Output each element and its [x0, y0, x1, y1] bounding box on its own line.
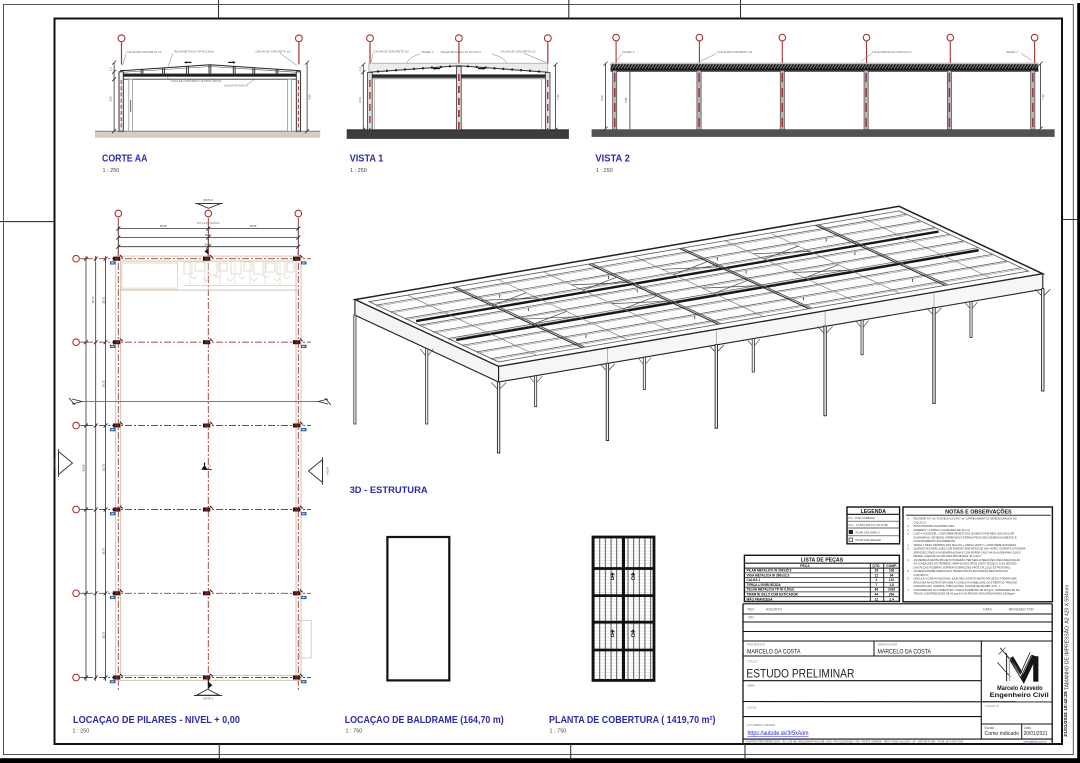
svg-text:Data: Data: [1024, 726, 1031, 730]
svg-text:LEGENDA: LEGENDA: [861, 509, 887, 515]
svg-text:2,4: 2,4: [889, 597, 894, 601]
svg-text:CALHA DE CONCRETO 1/2: CALHA DE CONCRETO 1/2: [501, 50, 537, 54]
svg-text:LOCAÇAO DE PILARES - NIVEL + 0: LOCAÇAO DE PILARES - NIVEL + 0,00: [73, 715, 241, 726]
svg-text:4.: 4.: [908, 558, 910, 562]
svg-text:ASSUNTO: ASSUNTO: [766, 607, 782, 611]
svg-text:6,00: 6,00: [600, 95, 604, 101]
svg-text:LOCAÇAO DE BALDRAME (164,70 m): LOCAÇAO DE BALDRAME (164,70 m): [345, 715, 504, 726]
svg-text:APLICADA NA ESTRUTURA SEM A CO: APLICADA NA ESTRUTURA SEM A CONSULTA A A…: [914, 580, 1018, 584]
svg-text:MÃO FRANCESA: MÃO FRANCESA: [747, 596, 774, 601]
svg-text:TERÇA = PESO PROPRIO DAS TELHA: TERÇA = PESO PROPRIO DAS TELHAS + CARGA …: [914, 543, 1018, 547]
svg-text:FOLHA Nº: FOLHA Nº: [986, 704, 1000, 708]
svg-text:6.: 6.: [908, 577, 910, 581]
svg-text:QUANDO HOUVER LAJES COM BORDAS: QUANDO HOUVER LAJES COM BORDAS SEM APOIO…: [914, 547, 1026, 551]
svg-text:CALHA 1: CALHA 1: [747, 578, 761, 582]
svg-text:VISTA 2: VISTA 2: [595, 153, 630, 164]
svg-text:TAMANHO DE IMPRESSÃO: A2 420: TAMANHO DE IMPRESSÃO: A2 420 X 594mm: [1063, 585, 1070, 690]
svg-text:7,20: 7,20: [1041, 94, 1045, 100]
svg-text:CONTEXTO;: CONTEXTO;: [914, 573, 929, 577]
svg-text:ESTUDO PRELIMINAR: ESTUDO PRELIMINAR: [746, 666, 854, 680]
svg-text:PESO PROPRIO DA ESTRUTURA;: PESO PROPRIO DA ESTRUTURA;: [914, 524, 956, 528]
svg-text:44: 44: [875, 593, 879, 597]
svg-text:16,75: 16,75: [101, 297, 105, 304]
svg-text:21: 21: [875, 573, 879, 577]
svg-text:1 : 250: 1 : 250: [596, 168, 613, 174]
svg-text:CALHA DE CONCRETO 1/2: CALHA DE CONCRETO 1/2: [127, 50, 163, 54]
svg-text:1 : 250: 1 : 250: [103, 168, 120, 174]
svg-text:16,75: 16,75: [101, 548, 105, 555]
svg-text:CONSIDERADA NA COBERTURA: CARG: CONSIDERADA NA COBERTURA: CARGA ACIDENTA…: [914, 588, 1020, 592]
svg-text:1 : 750: 1 : 750: [346, 729, 363, 735]
svg-text:18: 18: [875, 569, 879, 573]
svg-text:COMP.: COMP.: [886, 564, 897, 568]
svg-text:ALVENARIAS, SISTEMAS, FERROSAS: ALVENARIAS, SISTEMAS, FERROSAS E TERMAS …: [914, 535, 1017, 539]
svg-text:Engenheiro Civil: Engenheiro Civil: [990, 692, 1049, 699]
svg-text:MESMA, ALEM DE OUTRA INDA PROJ: MESMA, ALEM DE OUTRA INDA PROJETADA "IN …: [914, 554, 983, 558]
svg-text:VIGA METALICA W 360x32.9: VIGA METALICA W 360x32.9: [747, 573, 790, 577]
svg-text:PILAR CAD NIVEL 0: PILAR CAD NIVEL 0: [856, 530, 881, 534]
svg-text:1.: 1.: [908, 517, 910, 521]
svg-text:36,10: 36,10: [205, 233, 212, 237]
svg-text:REVISADO POR: REVISADO POR: [1009, 607, 1035, 611]
svg-text:18,05: 18,05: [250, 224, 257, 228]
svg-text:VISTA 1: VISTA 1: [203, 696, 213, 700]
svg-text:REV.: REV.: [748, 607, 756, 611]
svg-text:N: N: [209, 465, 211, 468]
svg-text:83,80: 83,80: [81, 464, 85, 471]
svg-text:CORTE AA: CORTE AA: [102, 153, 148, 164]
svg-text:GALPÕES PRÉ-FABRICADOS - AV. L: GALPÕES PRÉ-FABRICADOS - AV. LUIS HM. WA…: [746, 741, 965, 744]
svg-text:1 : 750: 1 : 750: [550, 729, 567, 735]
svg-text:3D - ESTRUTURA: 3D - ESTRUTURA: [350, 485, 429, 495]
svg-text:CALHA DE CONCRETO 1/2: CALHA DE CONCRETO 1/2: [717, 50, 753, 54]
svg-text:TELHA METALICA TP 40 0,5mm: TELHA METALICA TP 40 0,5mm: [174, 49, 215, 53]
svg-text:LAJE = ACESSIVEL, CONFORME REV: LAJE = ACESSIVEL, CONFORME REVEST.DAS QU…: [914, 532, 1015, 536]
svg-text:N.A. - A 1,50m DO N.A. DO LOTE: N.A. - A 1,50m DO N.A. DO LOTE: [849, 523, 888, 527]
svg-text:FUNCIONAMENTO DO AMBIENTE;: FUNCIONAMENTO DO AMBIENTE;: [914, 539, 956, 543]
svg-text:16,75: 16,75: [101, 380, 105, 387]
svg-text:001: 001: [749, 616, 755, 620]
svg-text:264: 264: [889, 593, 895, 597]
svg-text:VISTA 2: VISTA 2: [54, 458, 57, 467]
svg-text:PAINEL 1 -: PAINEL 1 -: [422, 50, 436, 54]
svg-text:QTD.: QTD.: [872, 564, 880, 568]
svg-text:VIGA DE CONCRETO 19 PROT. 60X1: VIGA DE CONCRETO 19 PROT. 60X19: [172, 79, 222, 83]
svg-text:16,75: 16,75: [101, 464, 105, 471]
svg-text:12: 12: [875, 597, 879, 601]
svg-text:CALCULO;: CALCULO;: [914, 520, 927, 524]
svg-text:c.: c.: [908, 544, 910, 547]
svg-text:36,10: 36,10: [205, 242, 212, 246]
svg-text:1 : 250: 1 : 250: [350, 168, 367, 174]
svg-text:2: 2: [876, 578, 878, 582]
svg-text:https://autode.sk/3r5xAom: https://autode.sk/3r5xAom: [748, 731, 809, 737]
svg-text:VISTA 4: VISTA 4: [326, 467, 329, 476]
svg-text:AUTODESK VIEWER: AUTODESK VIEWER: [747, 723, 775, 727]
svg-text:5.: 5.: [908, 569, 910, 573]
svg-text:Escala: Escala: [985, 726, 995, 730]
svg-text:NOTAS E OBSERVAÇÕES: NOTAS E OBSERVAÇÕES: [945, 508, 1012, 515]
svg-text:21/01/2022 18:42:29: 21/01/2022 18:42:29: [1063, 691, 1069, 737]
svg-text:7,20: 7,20: [556, 94, 560, 100]
svg-text:TERÇA U ENRIJECIDA: TERÇA U ENRIJECIDA: [747, 583, 782, 587]
svg-text:18,05: 18,05: [160, 224, 167, 228]
svg-text:20/01/2021: 20/01/2021: [1024, 731, 1048, 737]
svg-text:b.: b.: [908, 532, 910, 536]
svg-text:7.: 7.: [908, 588, 910, 592]
svg-text:1,2: 1,2: [358, 67, 362, 71]
svg-text:94: 94: [890, 573, 894, 577]
svg-text:VISTA 1: VISTA 1: [350, 153, 384, 164]
svg-text:PILAR CAD NASCER: PILAR CAD NASCER: [856, 538, 881, 542]
svg-text:MARCELO DA COSTA: MARCELO DA COSTA: [747, 649, 801, 656]
svg-text:PAINEL 1: PAINEL 1: [1006, 50, 1018, 54]
svg-text:DATA: DATA: [983, 607, 992, 611]
svg-text:110: 110: [889, 578, 894, 582]
svg-text:RECHEAR OS "ws" E NIVELA-LOS E: RECHEAR OS "ws" E NIVELA-LOS EM "us" CAR…: [914, 517, 1017, 521]
svg-text:1,8: 1,8: [889, 583, 894, 587]
svg-text:LOCAL: LOCAL: [747, 706, 757, 710]
svg-text:MARCELO DA COSTA: MARCELO DA COSTA: [878, 649, 932, 656]
svg-text:a.: a.: [908, 529, 910, 532]
svg-text:5,80: 5,80: [624, 97, 628, 103]
svg-text:7: 7: [876, 583, 878, 587]
svg-text:CALHA PLUVIAL 1: CALHA PLUVIAL 1: [224, 84, 248, 88]
svg-text:PLANTA DE COBERTURA ( 1419,70: PLANTA DE COBERTURA ( 1419,70 m²): [549, 715, 716, 726]
svg-text:SER EXECUTADO A ALVENARIA ACIM: SER EXECUTADO A ALVENARIA ACIMA E COM BO…: [914, 550, 1022, 554]
svg-text:TIRANTE Ø12.5 COM ESTICADOR: TIRANTE Ø12.5 COM ESTICADOR: [747, 593, 799, 597]
svg-text:www.galpoes.com.br: www.galpoes.com.br: [1024, 741, 1047, 744]
svg-text:PROJETISTA: PROJETISTA: [747, 642, 765, 646]
svg-text:108: 108: [889, 569, 895, 573]
svg-text:3,00: 3,00: [109, 96, 113, 102]
svg-text:CALHA DE CONCRETO 1/2: CALHA DE CONCRETO 1/2: [374, 50, 410, 54]
svg-text:P.A. - PISO ACABADO: P.A. - PISO ACABADO: [849, 516, 875, 520]
svg-text:TRT E ESQUADRIAS: TRT E ESQUADRIAS: [196, 222, 220, 225]
svg-text:2.: 2.: [908, 524, 910, 528]
svg-text:TITULO: TITULO: [747, 660, 758, 664]
svg-text:16,75: 16,75: [101, 632, 105, 639]
svg-text:TELHA METALICA TP 40 0,5mm: TELHA METALICA TP 40 0,5mm: [747, 588, 795, 592]
svg-text:PEÇA: PEÇA: [800, 564, 810, 568]
svg-text:PILAR METALICO W 200x35.9: PILAR METALICO W 200x35.9: [747, 569, 792, 573]
svg-text:TELHA METALICA TP40 0,5mm: TELHA METALICA TP40 0,5mm: [872, 50, 913, 54]
svg-text:VERIFICADOR: VERIFICADOR: [878, 642, 898, 646]
svg-text:OBRA: OBRA: [747, 684, 755, 688]
svg-text:3.: 3.: [908, 547, 910, 551]
svg-text:84: 84: [875, 588, 879, 592]
svg-text:Como indicado: Como indicado: [985, 731, 1020, 737]
svg-text:CALHA DE CONCRETO 1/2: CALHA DE CONCRETO 1/2: [256, 49, 292, 53]
svg-text:6,00: 6,00: [358, 97, 362, 103]
svg-text:TELHA METALICA TP 40 0,5mm: TELHA METALICA TP 40 0,5mm: [441, 50, 482, 54]
svg-text:1 : 250: 1 : 250: [73, 729, 90, 735]
svg-text:PAINEL 1: PAINEL 1: [623, 50, 635, 54]
svg-text:1419: 1419: [888, 588, 895, 592]
svg-text:16,75: 16,75: [91, 296, 95, 303]
svg-text:4,20: 4,20: [308, 94, 312, 100]
svg-text:1,2: 1,2: [109, 67, 113, 71]
svg-text:VISTA 3: VISTA 3: [203, 198, 213, 202]
svg-text:PAREDES = 0,25kN/m² (ALVENARIA: PAREDES = 0,25kN/m² (ALVENARIA DE 20 cm)…: [914, 528, 971, 532]
